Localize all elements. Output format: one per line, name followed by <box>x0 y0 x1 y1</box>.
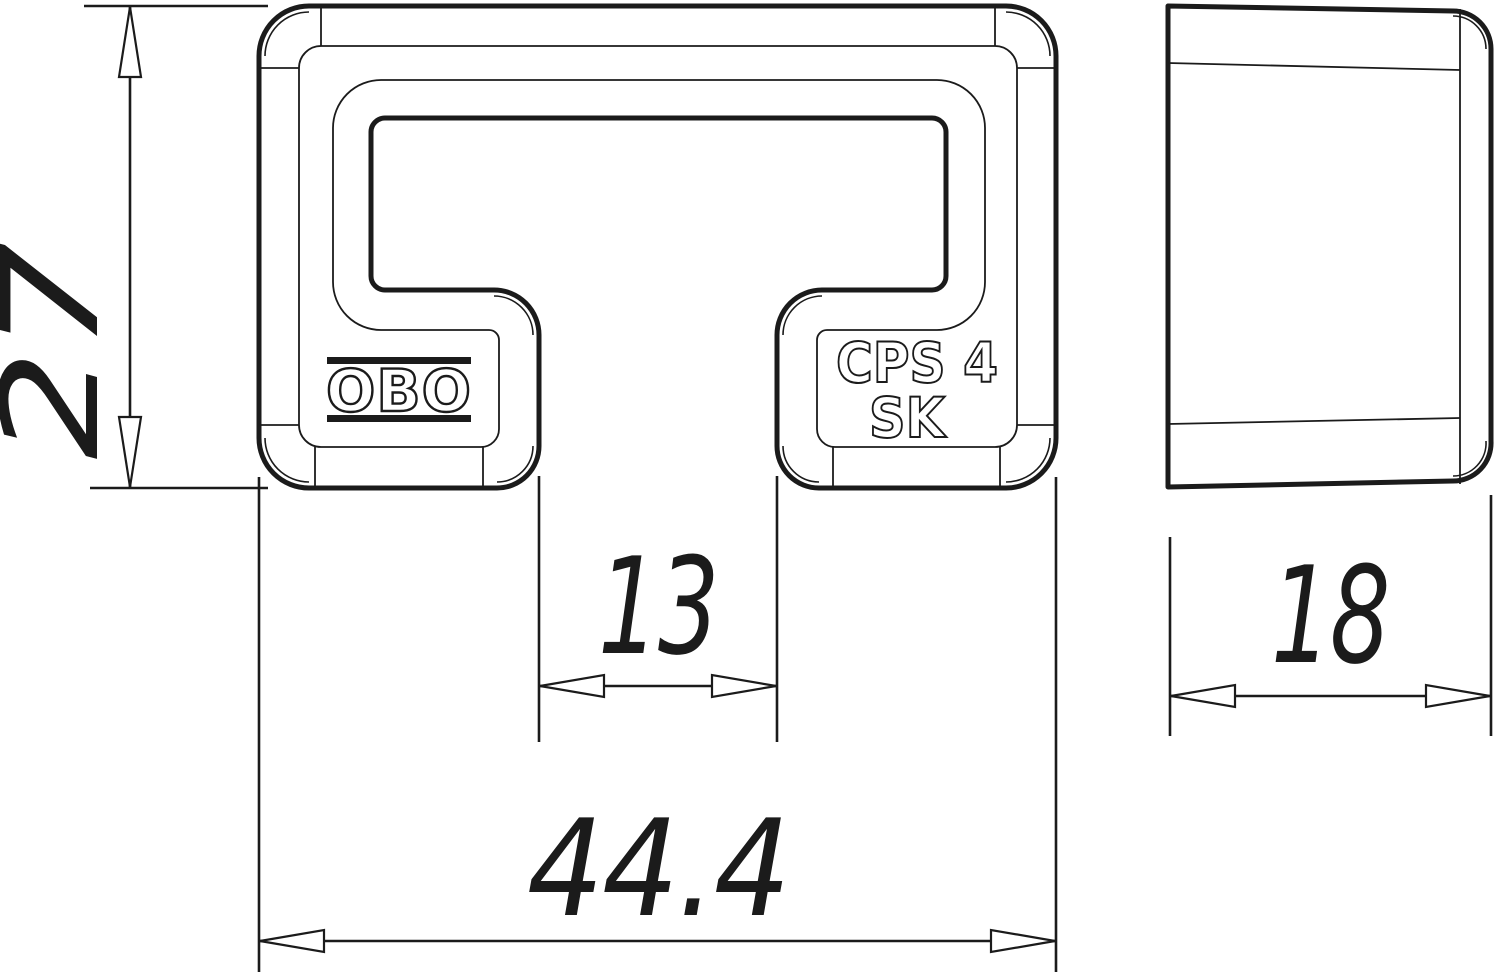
obo-logo-text: OBO <box>326 357 472 425</box>
product-marking: CPS 4 SK <box>836 331 998 450</box>
dimension-overall-width-value: 44.4 <box>527 791 789 947</box>
side-view-corner-highlight-arcs <box>1453 16 1486 476</box>
arrowhead-right <box>1426 685 1490 707</box>
dimension-slot-width: 13 <box>539 476 777 742</box>
arrowhead-left <box>260 930 324 952</box>
technical-drawing-page: OBO CPS 4 SK <box>0 0 1500 979</box>
arrowhead-left <box>1171 685 1235 707</box>
dimension-slot-width-value: 13 <box>598 529 718 685</box>
side-view-outline <box>1168 6 1491 487</box>
arrowhead-right <box>712 675 776 697</box>
side-view <box>1168 6 1491 487</box>
dimension-height-value: 27 <box>0 242 129 459</box>
side-view-edge-lines <box>1168 9 1460 484</box>
dimension-height: 27 <box>0 6 268 488</box>
marking-line2: SK <box>869 386 947 450</box>
dimension-depth: 18 <box>1170 495 1491 736</box>
technical-drawing-canvas: OBO CPS 4 SK <box>0 0 1500 979</box>
dimension-depth-value: 18 <box>1271 538 1389 694</box>
front-view: OBO CPS 4 SK <box>259 6 1056 488</box>
arrowhead-left <box>540 675 604 697</box>
obo-logo: OBO <box>326 357 472 425</box>
arrowhead-right <box>991 930 1055 952</box>
arrowhead-up <box>119 7 141 77</box>
